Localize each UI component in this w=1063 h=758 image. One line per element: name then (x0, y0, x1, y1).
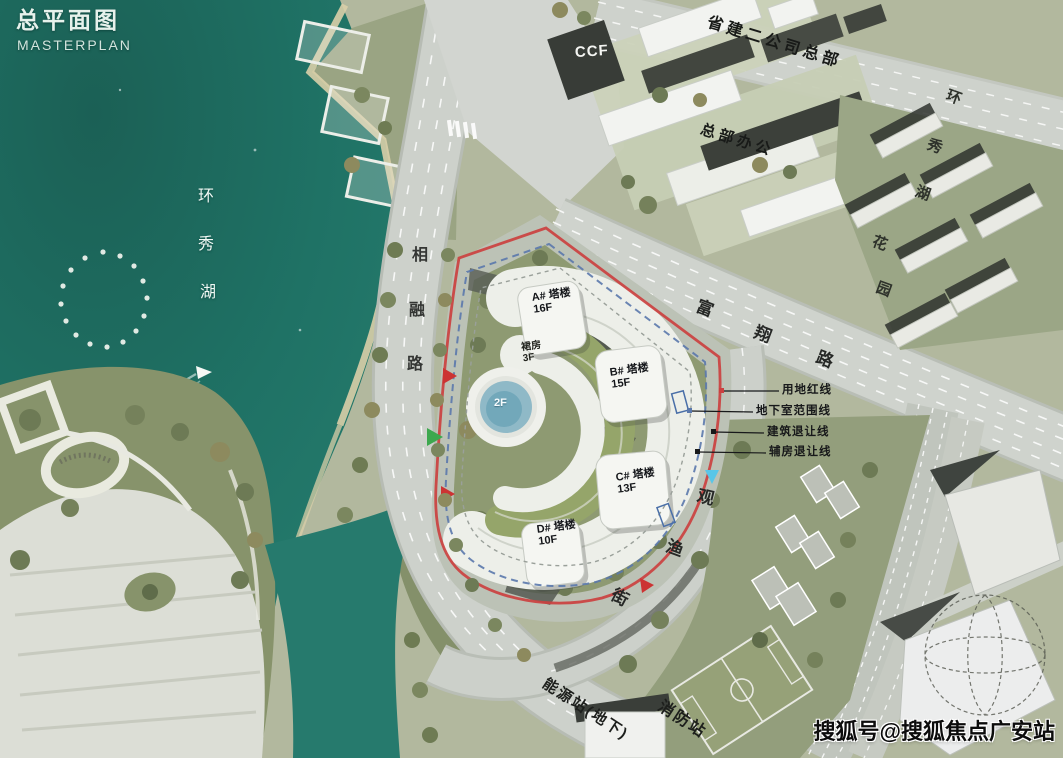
watermark: 搜狐号@搜狐焦点广安站 (814, 720, 1055, 744)
masterplan-image: 总平面图 MASTERPLAN 环 秀 湖 相 融 路 富 翔 路 观 渔 街 … (0, 0, 1063, 758)
legend-building-setback: 建筑退让线 (767, 426, 830, 439)
road-xiangrong-char: 相 (412, 247, 428, 265)
map-canvas (0, 0, 1063, 758)
lake-name-char: 环 (198, 188, 215, 206)
road-xiangrong-char: 融 (409, 302, 425, 320)
legend-red-line: 用地红线 (782, 384, 832, 397)
pool-label: 2F (494, 397, 507, 409)
podium-label: 裙房 3F (521, 340, 544, 365)
page-subtitle: MASTERPLAN (17, 38, 132, 53)
page-title: 总平面图 (16, 8, 120, 33)
lake-name-char: 秀 (198, 236, 215, 254)
legend-auxiliary-setback: 辅房退让线 (769, 446, 832, 459)
road-xiangrong-char: 路 (407, 356, 423, 374)
lake-name-char: 湖 (200, 284, 217, 302)
ccf-label: CCF (574, 43, 609, 62)
legend-basement-line: 地下室范围线 (756, 405, 831, 418)
